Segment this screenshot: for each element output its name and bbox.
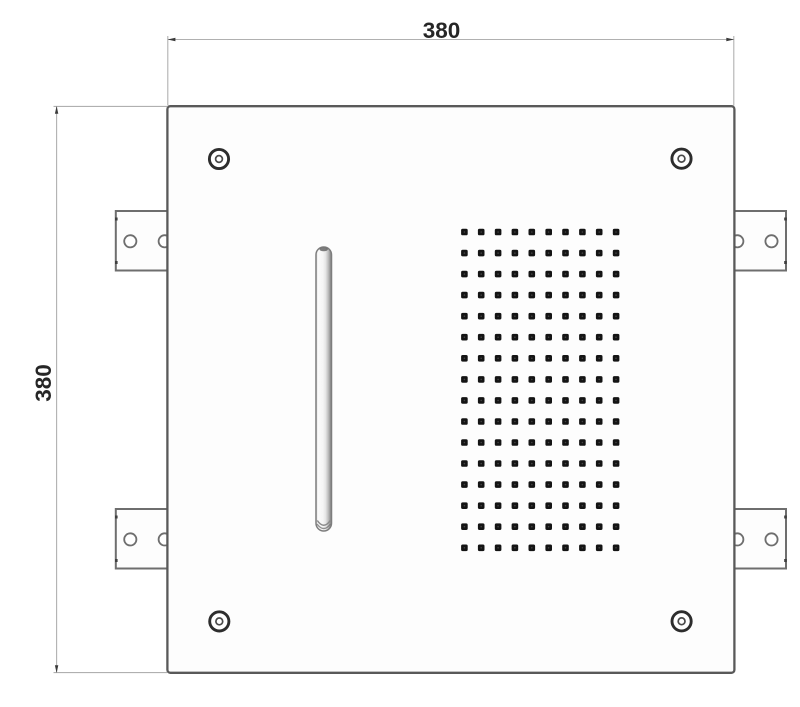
svg-text:380: 380 bbox=[31, 364, 56, 402]
svg-text:380: 380 bbox=[423, 18, 461, 43]
